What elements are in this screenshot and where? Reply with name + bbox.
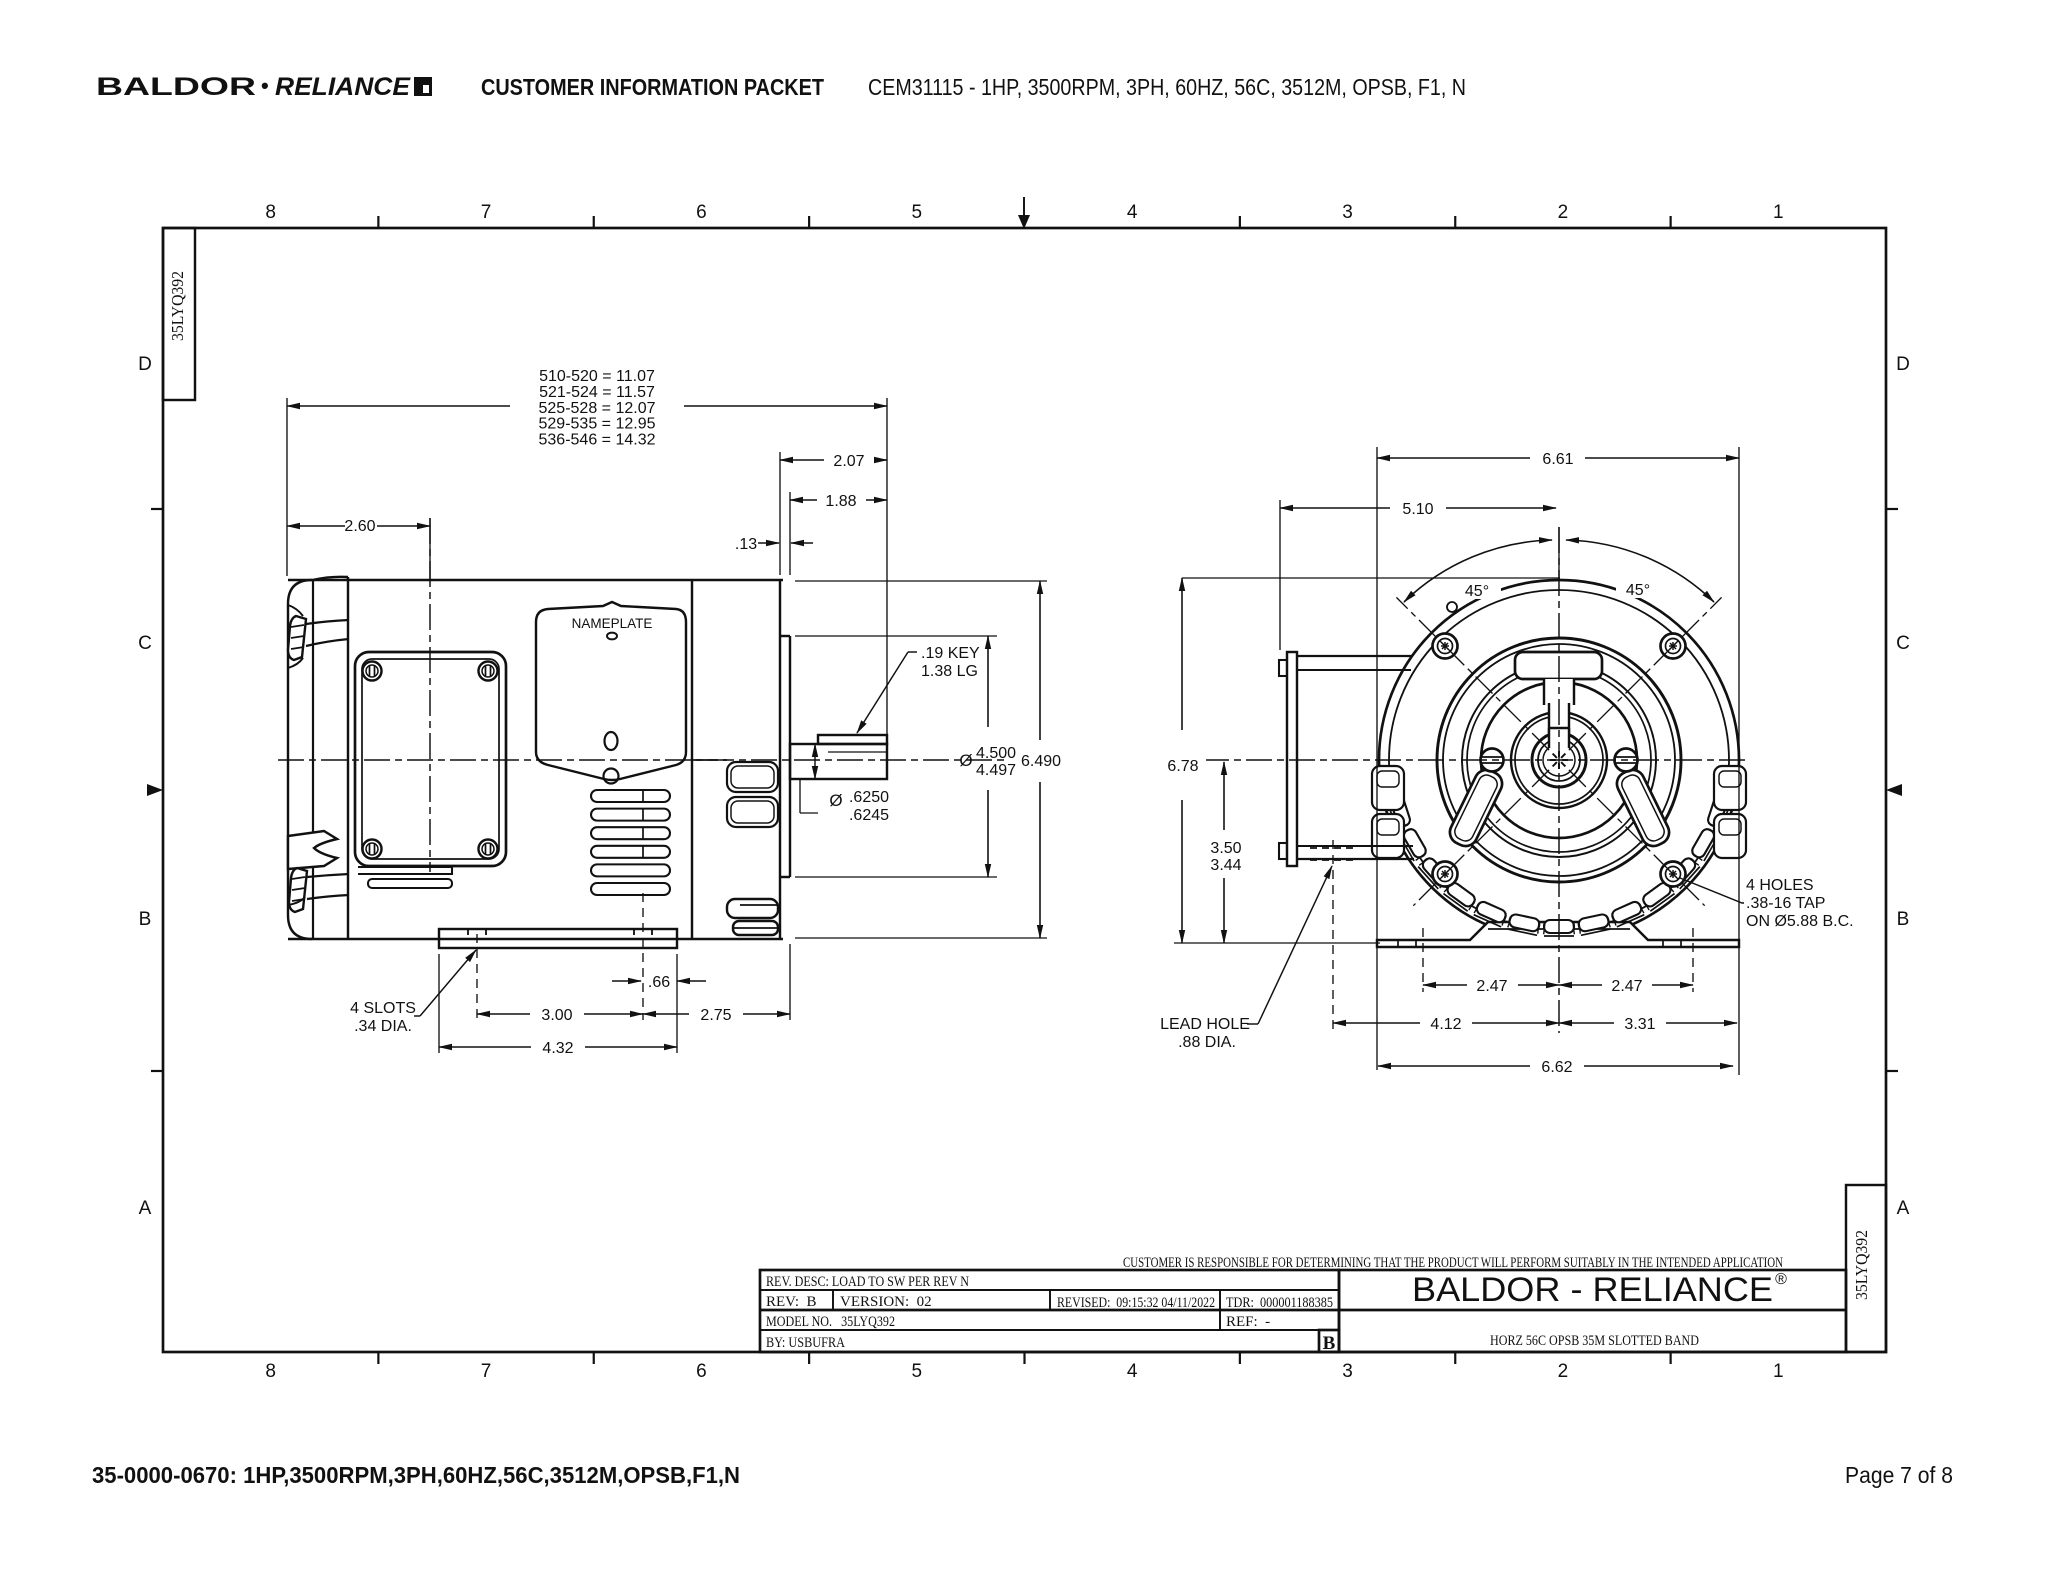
svg-text:BALDOR - RELIANCE: BALDOR - RELIANCE <box>1412 1271 1773 1309</box>
svg-text:5: 5 <box>912 202 923 223</box>
svg-text:5.10: 5.10 <box>1402 501 1433 518</box>
svg-text:ON Ø5.88 B.C.: ON Ø5.88 B.C. <box>1746 913 1854 930</box>
svg-text:35-0000-0670: 1HP,3500RPM,3PH,: 35-0000-0670: 1HP,3500RPM,3PH,60HZ,56C,3… <box>92 1462 740 1488</box>
svg-text:NAMEPLATE: NAMEPLATE <box>572 616 653 631</box>
svg-text:1.38 LG: 1.38 LG <box>921 663 978 680</box>
svg-text:BALDOR: BALDOR <box>96 73 256 101</box>
svg-text:4.12: 4.12 <box>1430 1016 1461 1033</box>
svg-text:Ø: Ø <box>959 751 972 770</box>
svg-text:D: D <box>1896 354 1910 375</box>
svg-text:2.07: 2.07 <box>833 453 864 470</box>
svg-text:6: 6 <box>696 1361 707 1382</box>
svg-text:6.61: 6.61 <box>1542 451 1573 468</box>
svg-text:CUSTOMER INFORMATION PACKET: CUSTOMER INFORMATION PACKET <box>481 74 824 100</box>
svg-text:6: 6 <box>696 202 707 223</box>
svg-text:HORZ 56C OPSB 35M SLOTTED BAND: HORZ 56C OPSB 35M SLOTTED BAND <box>1490 1333 1699 1349</box>
svg-text:MODEL NO. 35LYQ392: MODEL NO. 35LYQ392 <box>766 1314 895 1330</box>
svg-text:529-535 = 12.95: 529-535 = 12.95 <box>539 416 656 433</box>
svg-text:2: 2 <box>1558 202 1569 223</box>
svg-text:4: 4 <box>1127 1361 1138 1382</box>
svg-text:3: 3 <box>1342 1361 1353 1382</box>
svg-text:Ø: Ø <box>829 791 842 810</box>
svg-text:525-528 = 12.07: 525-528 = 12.07 <box>539 400 656 417</box>
svg-text:536-546 = 14.32: 536-546 = 14.32 <box>539 432 656 449</box>
svg-text:521-524 = 11.57: 521-524 = 11.57 <box>539 384 655 401</box>
svg-text:7: 7 <box>481 1361 492 1382</box>
svg-text:5: 5 <box>912 1361 923 1382</box>
svg-text:REVISED: 09:15:32 04/11/2022: REVISED: 09:15:32 04/11/2022 <box>1057 1295 1215 1311</box>
svg-text:.19 KEY: .19 KEY <box>921 645 980 662</box>
svg-text:3: 3 <box>1342 202 1353 223</box>
svg-text:4 HOLES: 4 HOLES <box>1746 877 1814 894</box>
svg-text:A: A <box>139 1198 152 1219</box>
svg-text:45°: 45° <box>1465 583 1489 600</box>
svg-text:BY: USBUFRA: BY: USBUFRA <box>766 1335 845 1351</box>
svg-text:4.32: 4.32 <box>542 1040 573 1057</box>
svg-text:.38-16 TAP: .38-16 TAP <box>1746 895 1825 912</box>
svg-text:8: 8 <box>265 202 276 223</box>
svg-text:TDR: 000001188385: TDR: 000001188385 <box>1226 1295 1333 1311</box>
svg-text:®: ® <box>1775 1271 1787 1288</box>
svg-text:.66: .66 <box>648 974 670 991</box>
svg-text:.34 DIA.: .34 DIA. <box>354 1018 412 1035</box>
svg-text:3.50: 3.50 <box>1210 840 1241 857</box>
svg-text:6.78: 6.78 <box>1167 758 1198 775</box>
svg-text:B: B <box>1323 1333 1336 1354</box>
svg-text:2.47: 2.47 <box>1476 978 1507 995</box>
svg-text:2.60: 2.60 <box>344 518 375 535</box>
svg-text:2: 2 <box>1558 1361 1569 1382</box>
svg-text:3.44: 3.44 <box>1210 857 1241 874</box>
svg-text:510-520 = 11.07: 510-520 = 11.07 <box>539 368 655 385</box>
svg-text:CEM31115 - 1HP, 3500RPM, 3PH,: CEM31115 - 1HP, 3500RPM, 3PH, 60HZ, 56C,… <box>868 74 1466 100</box>
svg-text:REV. DESC: LOAD TO SW PER REV: REV. DESC: LOAD TO SW PER REV N <box>766 1274 969 1290</box>
svg-text:Page 7 of 8: Page 7 of 8 <box>1845 1462 1953 1488</box>
svg-text:C: C <box>1896 633 1910 654</box>
svg-text:3.31: 3.31 <box>1624 1016 1655 1033</box>
svg-text:B: B <box>139 909 152 930</box>
svg-text:4.500: 4.500 <box>976 745 1016 762</box>
svg-text:C: C <box>138 633 152 654</box>
svg-text:4 SLOTS: 4 SLOTS <box>350 1000 416 1017</box>
svg-text:1: 1 <box>1773 202 1784 223</box>
svg-text:7: 7 <box>481 202 492 223</box>
svg-text:35LYQ392: 35LYQ392 <box>1852 1230 1871 1300</box>
svg-text:8: 8 <box>265 1361 276 1382</box>
svg-text:.13: .13 <box>735 536 757 553</box>
svg-text:CUSTOMER IS RESPONSIBLE FOR DE: CUSTOMER IS RESPONSIBLE FOR DETERMINING … <box>1123 1255 1783 1271</box>
svg-text:4.497: 4.497 <box>976 762 1016 779</box>
svg-text:A: A <box>1897 1198 1910 1219</box>
svg-text:D: D <box>138 354 152 375</box>
svg-text:REV: B: REV: B <box>766 1294 817 1310</box>
svg-text:35LYQ392: 35LYQ392 <box>168 271 187 341</box>
svg-text:6.490: 6.490 <box>1021 753 1061 770</box>
svg-text:1.88: 1.88 <box>825 493 856 510</box>
svg-text:.88 DIA.: .88 DIA. <box>1178 1034 1236 1051</box>
svg-text:.6250: .6250 <box>849 789 889 806</box>
svg-text:VERSION: 02: VERSION: 02 <box>840 1294 932 1310</box>
svg-text:REF: -: REF: - <box>1226 1314 1270 1330</box>
svg-text:6.62: 6.62 <box>1541 1059 1572 1076</box>
svg-text:LEAD HOLE: LEAD HOLE <box>1160 1016 1250 1033</box>
svg-text:4: 4 <box>1127 202 1138 223</box>
svg-text:.6245: .6245 <box>849 807 889 824</box>
svg-text:2.47: 2.47 <box>1611 978 1642 995</box>
svg-text:45°: 45° <box>1626 582 1650 599</box>
svg-text:2.75: 2.75 <box>700 1007 731 1024</box>
svg-text:•: • <box>261 73 269 98</box>
svg-text:3.00: 3.00 <box>541 1007 572 1024</box>
svg-text:B: B <box>1897 909 1910 930</box>
svg-text:RELIANCE: RELIANCE <box>275 73 411 101</box>
svg-text:1: 1 <box>1773 1361 1784 1382</box>
